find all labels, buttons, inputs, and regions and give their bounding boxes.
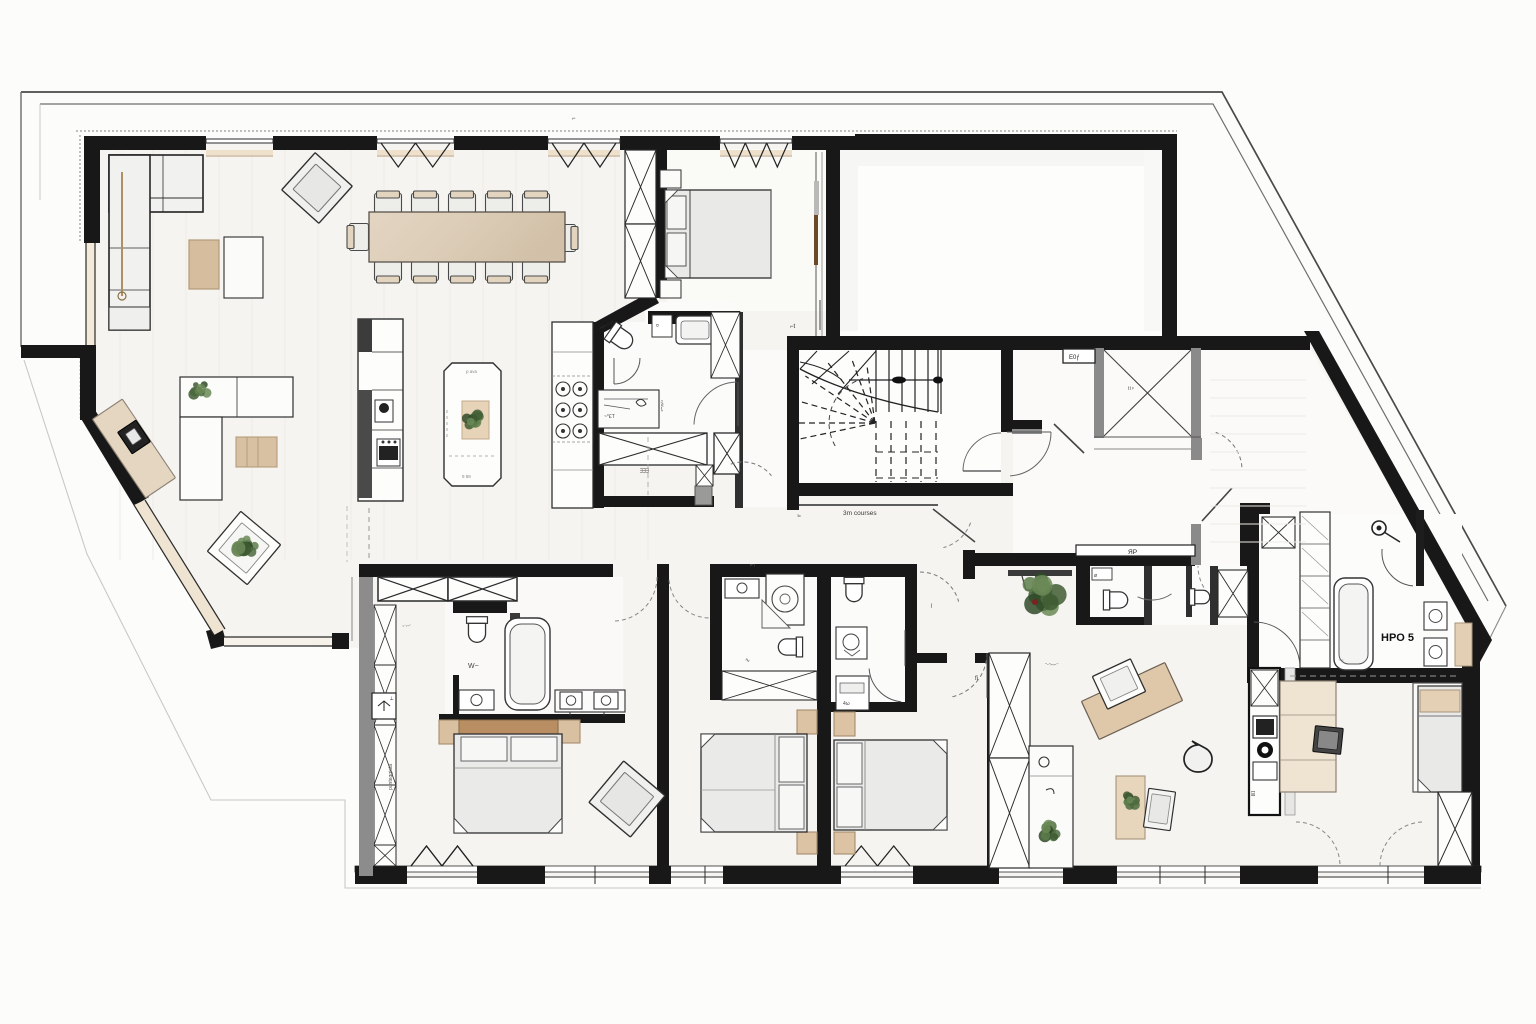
- svg-text:t⌇ᵖ: t⌇ᵖ: [1128, 386, 1134, 392]
- svg-text:HPO 5: HPO 5: [1381, 632, 1414, 644]
- svg-text:ᵢ⌐ᵣ: ᵢ⌐ᵣ: [750, 562, 756, 568]
- svg-text:p ava: p ava: [466, 369, 478, 374]
- svg-text:⌇: ⌇: [930, 603, 933, 610]
- svg-text:⌐: ⌐: [572, 116, 576, 122]
- svg-text:W~: W~: [468, 663, 479, 670]
- svg-text:¤: ¤: [656, 323, 659, 329]
- svg-text:4ω: 4ω: [843, 701, 850, 707]
- svg-text:ЯP: ЯP: [1128, 549, 1137, 556]
- svg-text:~~: ~~: [1338, 658, 1344, 664]
- svg-text:ᴲᵉ: ᴲᵉ: [797, 514, 801, 520]
- svg-text:⌸: ⌸: [1251, 791, 1255, 798]
- svg-text:ᵔᵕᵔ⌐⌐ᵔ: ᵔᵕᵔ⌐⌐ᵔ: [1045, 662, 1059, 668]
- svg-text:ᶜʸᵂ⌁ᵃ: ᶜʸᵂ⌁ᵃ: [658, 400, 664, 411]
- svg-text:3m courses: 3m courses: [843, 510, 877, 517]
- svg-text:∿: ∿: [745, 658, 750, 664]
- svg-text:Ε0ƒ: Ε0ƒ: [1069, 355, 1080, 361]
- svg-text:⌐t: ⌐t: [790, 324, 796, 330]
- svg-text:~°£T: ~°£T: [604, 414, 615, 420]
- svg-text:ø: ø: [1094, 573, 1097, 579]
- svg-text:punteggiata: punteggiata: [388, 764, 394, 790]
- svg-text:fi: fi: [975, 676, 978, 682]
- svg-text:9 88: 9 88: [462, 474, 471, 479]
